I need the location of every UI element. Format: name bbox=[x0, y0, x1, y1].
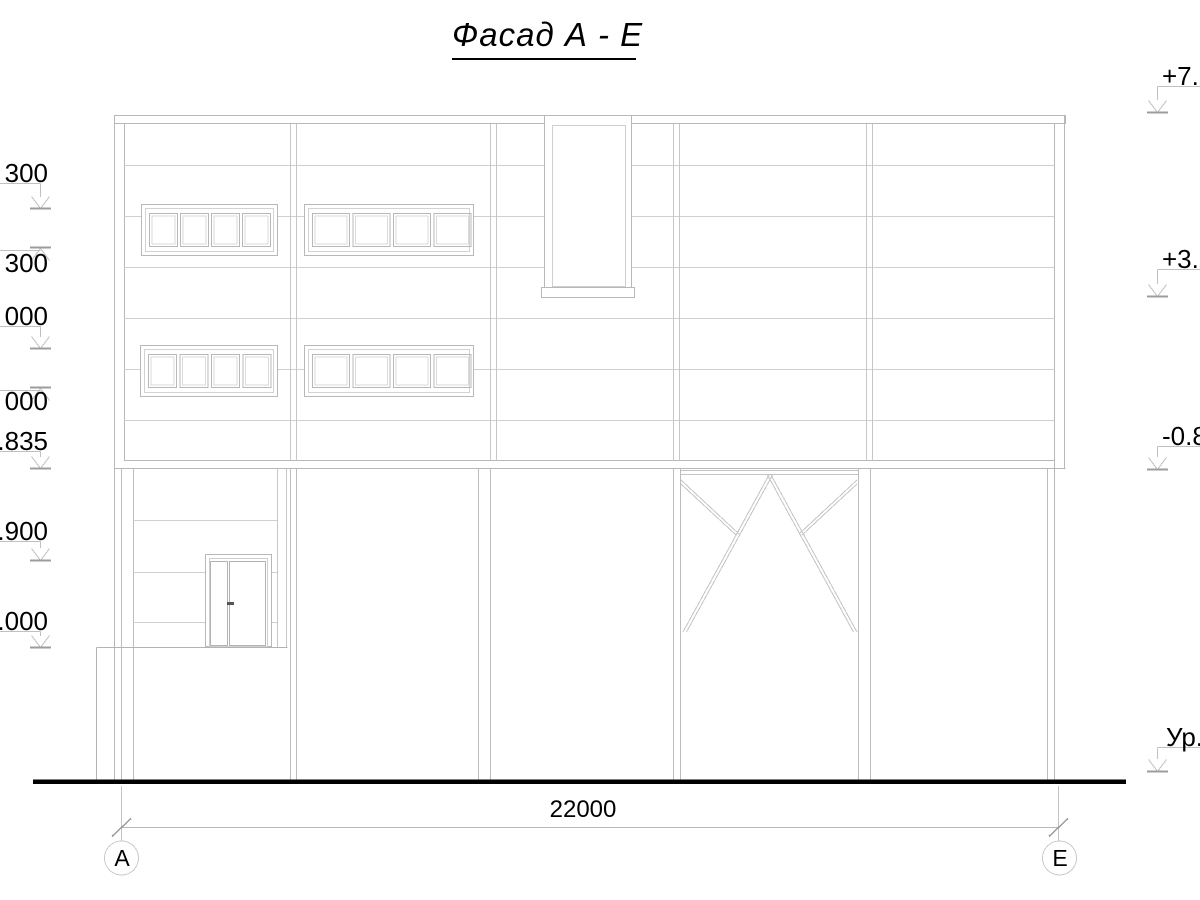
elevation-value: 300 bbox=[0, 250, 48, 277]
elevation-value: 300 bbox=[0, 160, 48, 187]
elevation-value: 000 bbox=[0, 303, 48, 330]
x-bracing bbox=[681, 471, 859, 633]
elevation-value: .000 bbox=[0, 608, 48, 635]
strip-window bbox=[141, 346, 278, 397]
strip-window bbox=[305, 205, 474, 256]
entrance-door bbox=[206, 555, 272, 647]
elevation-value: +7.50 bbox=[1162, 63, 1200, 90]
strip-window bbox=[305, 346, 474, 397]
vestibule bbox=[97, 469, 288, 781]
axis-label-e: Е bbox=[1042, 846, 1078, 870]
elevation-value: .900 bbox=[0, 518, 48, 545]
elevation-value: .835 bbox=[0, 428, 48, 455]
ground-level-label: Ур. bbox=[1166, 724, 1200, 751]
elevation-value: 000 bbox=[0, 388, 48, 415]
elevation-value: -0.83 bbox=[1162, 423, 1200, 450]
strip-window bbox=[142, 205, 278, 256]
axis-label-a: А bbox=[104, 846, 140, 870]
door-handle bbox=[227, 602, 234, 605]
window-row-1 bbox=[142, 205, 474, 256]
dimension-value: 22000 bbox=[533, 797, 633, 822]
window-row-2 bbox=[141, 346, 474, 397]
facade-linework bbox=[0, 0, 1200, 900]
facade-drawing-sheet: Фасад А - Е 300 300 000 000 .835 .900 .0… bbox=[0, 0, 1200, 900]
tower-panel bbox=[542, 116, 635, 298]
drawing-title: Фасад А - Е bbox=[452, 18, 636, 60]
elevation-value: +3.30 bbox=[1162, 246, 1200, 273]
